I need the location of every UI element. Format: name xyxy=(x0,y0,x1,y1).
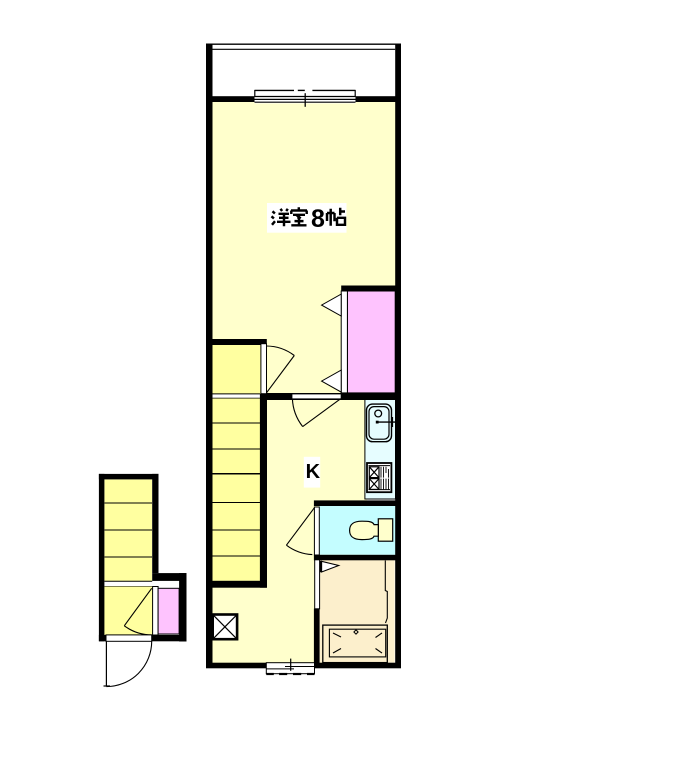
svg-text:K: K xyxy=(306,461,321,483)
svg-text:8: 8 xyxy=(311,205,325,233)
